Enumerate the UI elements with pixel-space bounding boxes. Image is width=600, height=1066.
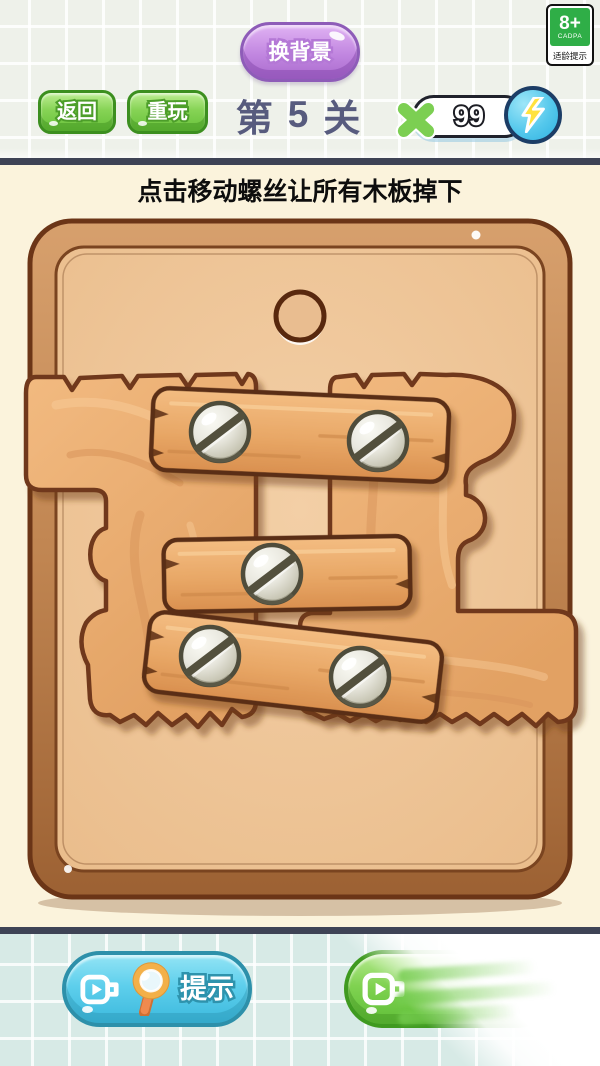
board-hole[interactable] bbox=[276, 292, 324, 345]
back-label: 返回 bbox=[57, 101, 97, 123]
replay-label: 重玩 bbox=[148, 101, 188, 123]
multiply-icon bbox=[394, 98, 438, 142]
back-button[interactable]: 返回 返回 bbox=[38, 90, 116, 134]
level-suffix: 关 bbox=[323, 88, 360, 142]
energy-orb-badge[interactable] bbox=[504, 86, 562, 144]
button-glint bbox=[138, 121, 147, 126]
top-divider bbox=[0, 158, 600, 165]
age-rating-badge: 8+ CADPA 适龄提示 bbox=[546, 4, 594, 66]
screw[interactable] bbox=[243, 545, 301, 603]
watch-video-button[interactable] bbox=[344, 950, 556, 1028]
level-title: 第 5 关 bbox=[218, 92, 378, 138]
lightning-icon bbox=[518, 97, 548, 133]
age-rating-authority: CADPA bbox=[558, 34, 582, 41]
hint-label: 提示 bbox=[180, 974, 234, 1004]
screw[interactable] bbox=[181, 627, 239, 685]
age-rating-green-box: 8+ CADPA bbox=[550, 8, 590, 46]
screw[interactable] bbox=[349, 412, 407, 470]
age-rating-value: 8+ bbox=[559, 14, 581, 33]
replay-button[interactable]: 重玩 重玩 bbox=[127, 90, 208, 134]
magnifier-icon bbox=[126, 962, 174, 1016]
video-icon bbox=[362, 972, 406, 1006]
button-glint bbox=[49, 121, 58, 126]
video-icon bbox=[80, 974, 120, 1005]
age-rating-label: 适龄提示 bbox=[550, 50, 590, 62]
screw[interactable] bbox=[331, 648, 389, 706]
bottom-divider bbox=[0, 927, 600, 934]
game-board-scene bbox=[0, 165, 600, 927]
hint-button[interactable]: 提示 提示 bbox=[62, 951, 252, 1027]
level-prefix: 第 bbox=[236, 88, 273, 142]
change-background-label: 换背景 bbox=[269, 41, 332, 64]
button-glint bbox=[366, 1007, 377, 1014]
button-glint bbox=[82, 1006, 93, 1013]
energy-counter: 99 99 bbox=[390, 84, 576, 150]
change-background-button[interactable]: 换背景 换背景 bbox=[240, 22, 360, 82]
game-screen: 换背景 换背景 8+ CADPA 适龄提示 返回 返回 重玩 重玩 第 5 关 bbox=[0, 0, 600, 1066]
energy-count: 99 bbox=[454, 101, 484, 131]
screw[interactable] bbox=[191, 403, 249, 461]
level-number: 5 bbox=[288, 94, 309, 136]
